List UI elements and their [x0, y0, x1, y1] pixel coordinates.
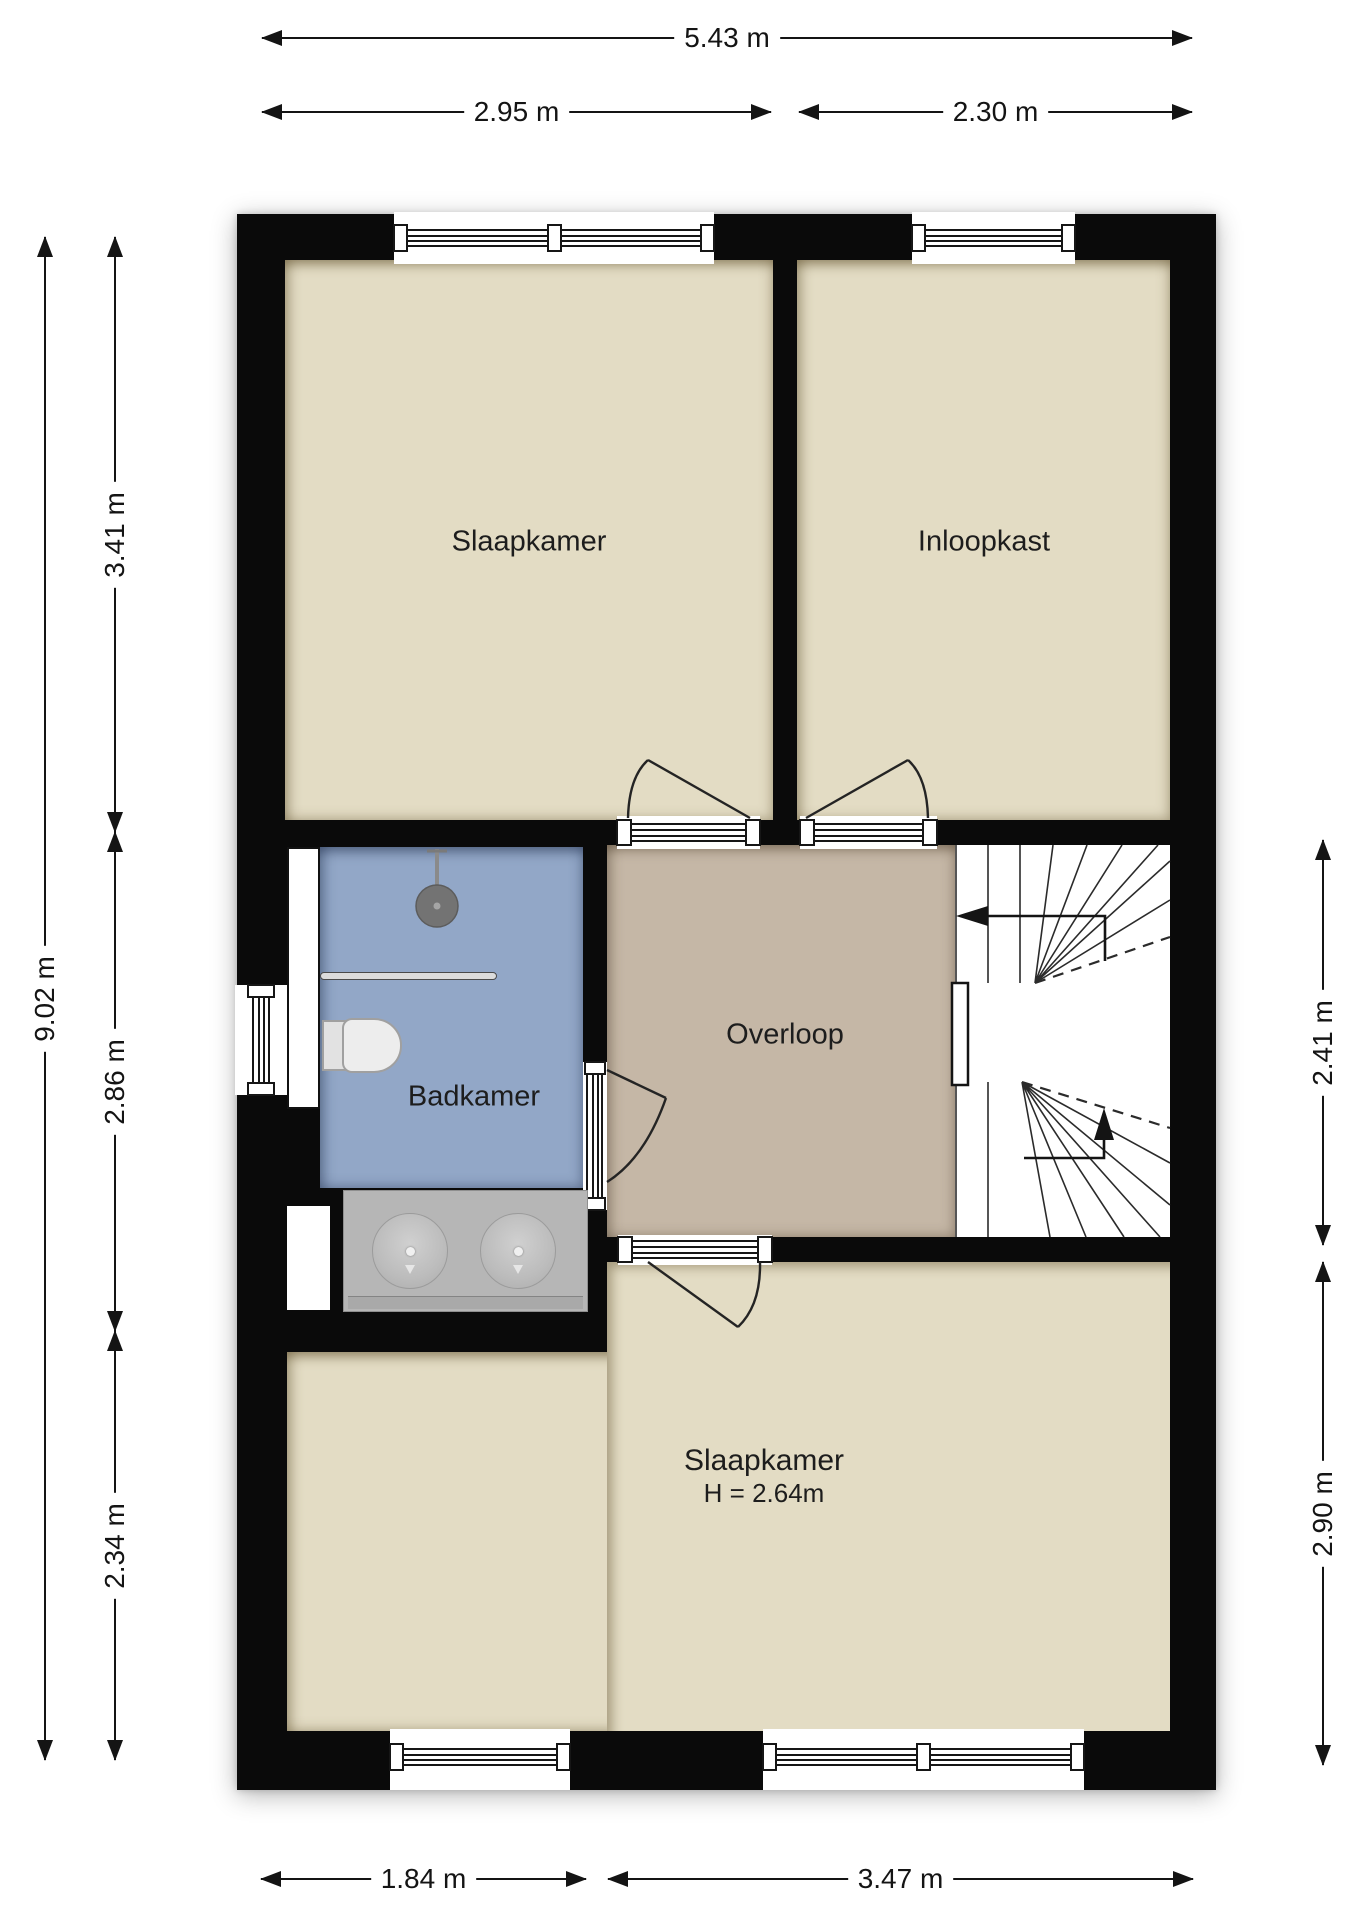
arrowhead-icon — [260, 1871, 281, 1887]
dimension-top-right: 2.30 m — [799, 111, 1192, 113]
dimension-bottom-right: 3.47 m — [608, 1878, 1193, 1880]
room-label-bathroom: Badkamer — [408, 1081, 540, 1114]
dimension-left-total: 9.02 m — [44, 237, 46, 1760]
arrowhead-icon — [1315, 1261, 1331, 1282]
floorplan-canvas: Slaapkamer Inloopkast Badkamer Overloop … — [0, 0, 1358, 1920]
arrowhead-icon — [261, 104, 282, 120]
dimension-left-middle: 2.86 m — [114, 832, 116, 1331]
arrowhead-icon — [751, 104, 772, 120]
room-label-bedroom-top: Slaapkamer — [452, 526, 607, 559]
shower-screen-icon — [320, 972, 497, 980]
room-label-closet: Inloopkast — [918, 526, 1050, 559]
window-bottom-left — [390, 1729, 570, 1790]
door-opening-bedroom-bottom — [618, 1235, 772, 1265]
door-opening-closet — [800, 816, 937, 849]
double-sink-vanity-icon — [343, 1190, 588, 1312]
arrowhead-icon — [37, 1740, 53, 1761]
dimension-right-bottom: 2.90 m — [1322, 1262, 1324, 1765]
arrowhead-icon — [107, 236, 123, 257]
room-label-bedroom-bottom-name: Slaapkamer — [684, 1444, 844, 1478]
door-opening-bedroom-top — [617, 816, 760, 849]
arrowhead-icon — [37, 236, 53, 257]
arrowhead-icon — [261, 30, 282, 46]
wall-niche — [287, 1206, 330, 1310]
dimension-left-top: 3.41 m — [114, 237, 116, 832]
sink-icon — [372, 1213, 448, 1289]
toilet-icon — [322, 1018, 402, 1073]
arrowhead-icon — [1315, 1225, 1331, 1246]
arrowhead-icon — [1172, 104, 1193, 120]
arrowhead-icon — [1315, 1745, 1331, 1766]
building-outline — [237, 214, 1216, 1790]
arrowhead-icon — [798, 104, 819, 120]
room-label-landing: Overloop — [726, 1019, 844, 1052]
window-left-bathroom — [235, 985, 287, 1095]
arrowhead-icon — [607, 1871, 628, 1887]
dimension-bottom-left: 1.84 m — [261, 1878, 586, 1880]
room-label-bedroom-bottom-height: H = 2.64m — [684, 1478, 844, 1508]
arrowhead-icon — [1315, 839, 1331, 860]
arrowhead-icon — [107, 1330, 123, 1351]
arrowhead-icon — [566, 1871, 587, 1887]
dimension-right-middle: 2.41 m — [1322, 840, 1324, 1245]
window-bottom-right — [763, 1729, 1084, 1790]
dimension-top-total: 5.43 m — [262, 37, 1192, 39]
bathroom-partition-wall — [287, 847, 320, 1109]
window-top-bedroom — [394, 212, 714, 264]
stairwell-area — [955, 845, 1170, 1237]
dimension-top-left: 2.95 m — [262, 111, 771, 113]
door-opening-bathroom — [583, 1062, 607, 1210]
dimension-left-bottom: 2.34 m — [114, 1331, 116, 1760]
arrowhead-icon — [107, 1311, 123, 1332]
arrowhead-icon — [1172, 30, 1193, 46]
window-top-closet — [912, 212, 1075, 264]
arrowhead-icon — [107, 1740, 123, 1761]
arrowhead-icon — [107, 812, 123, 833]
arrowhead-icon — [1173, 1871, 1194, 1887]
sink-icon — [480, 1213, 556, 1289]
room-label-bedroom-bottom: Slaapkamer H = 2.64m — [684, 1444, 844, 1508]
arrowhead-icon — [107, 831, 123, 852]
